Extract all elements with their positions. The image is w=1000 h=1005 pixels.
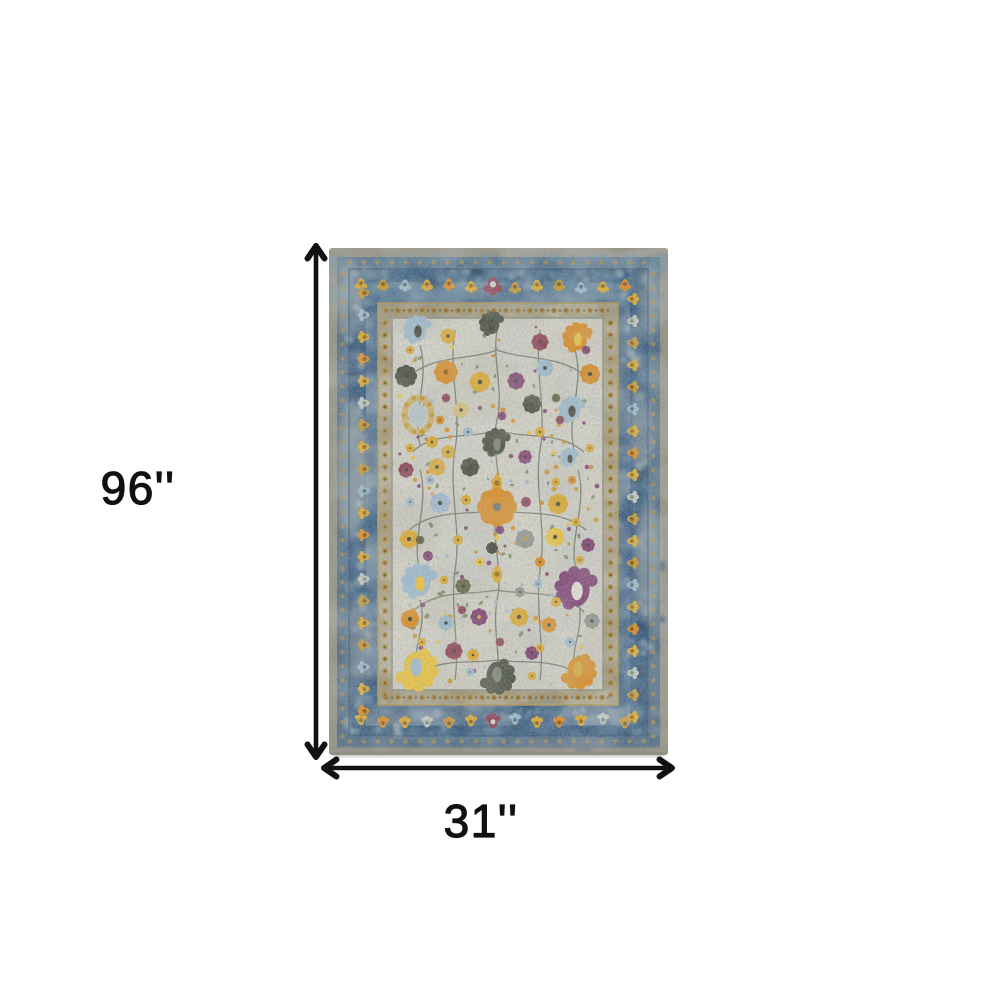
svg-text:96'': 96'' [101,462,176,514]
svg-text:31'': 31'' [444,795,519,847]
